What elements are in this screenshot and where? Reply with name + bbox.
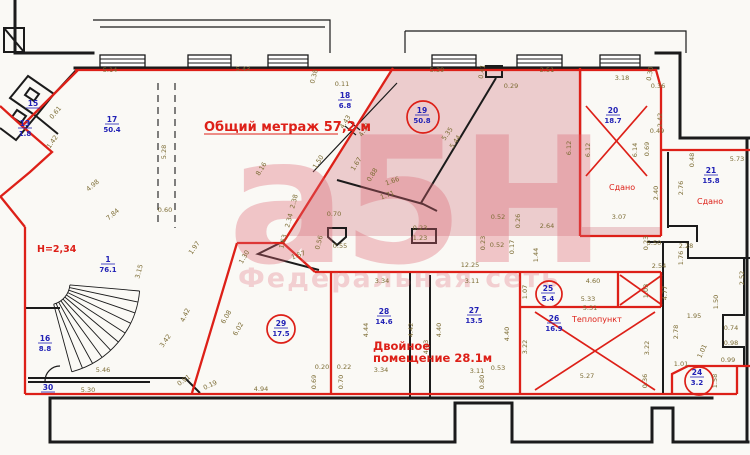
dimension-label: 3.18 — [615, 74, 629, 82]
dimension-label: 4.40 — [503, 327, 511, 341]
dimension-label: 5.31 — [583, 304, 597, 312]
dimension-label: 2.64 — [540, 222, 554, 230]
dimension-label: 1.03 — [642, 284, 650, 298]
room-number: 27 — [469, 306, 479, 315]
annotation-double: помещение 28.1м — [373, 351, 492, 365]
dimension-label: 5.39 — [430, 66, 444, 74]
dimension-label: 4.98 — [85, 178, 101, 193]
dimension-label: 1.95 — [687, 312, 701, 320]
dimension-label: 5.30 — [81, 386, 95, 394]
room-area: 50.4 — [103, 126, 120, 134]
room-area: 14.6 — [375, 318, 392, 326]
windows-layer — [100, 55, 640, 67]
staircase — [54, 285, 140, 372]
room-area: 5.4 — [542, 295, 555, 303]
dimension-label: 1.58 — [711, 374, 719, 388]
dimension-label: 0.23 — [642, 236, 650, 250]
dimension-label: 1.01 — [696, 343, 709, 360]
room-number: 29 — [276, 319, 286, 328]
room-area: 6.8 — [339, 102, 352, 110]
dimension-label: 0.53 — [491, 364, 505, 372]
dimension-label: 0.70 — [327, 210, 341, 218]
room-number: 16 — [40, 334, 50, 343]
dimension-label: 0.22 — [337, 363, 351, 371]
dimension-label: 1.01 — [674, 360, 688, 368]
dimension-label: 0.17 — [508, 240, 516, 254]
dimension-label: 3.07 — [612, 213, 626, 221]
dimension-label: 7.84 — [105, 207, 121, 222]
dimension-label: 4.60 — [586, 277, 600, 285]
dimension-label: 0.70 — [337, 375, 345, 389]
room-number: 25 — [543, 284, 553, 293]
dimension-label: 0.74 — [724, 324, 738, 332]
floor-plan-drawing: а5НФедеральная сеть 5.145.430.380.115.39… — [0, 0, 750, 455]
dimension-label: 2.40 — [652, 186, 660, 200]
dimension-label: 0.99 — [721, 356, 735, 364]
dimension-label: 3.11 — [465, 277, 479, 285]
dimension-label: 0.11 — [335, 80, 349, 88]
dimension-label: 0.80 — [478, 375, 486, 389]
dimension-label: 5.43 — [236, 65, 250, 73]
dimension-label: 5.46 — [96, 366, 110, 374]
room-number: 21 — [706, 166, 716, 175]
room-area: 1.8 — [19, 130, 32, 138]
room-number: 18 — [340, 91, 350, 100]
dimension-label: 0.26 — [514, 214, 522, 228]
dimension-label: 4.94 — [254, 385, 268, 393]
dimension-label: 3.42 — [158, 333, 173, 349]
dimension-label: 5.28 — [160, 145, 168, 159]
dimension-label: 0.52 — [491, 213, 505, 221]
dimension-label: 0.60 — [158, 206, 172, 214]
dimension-label: 2.51 — [540, 66, 554, 74]
dimension-label: 0.36 — [651, 82, 665, 90]
room-area: 17.5 — [272, 330, 289, 338]
dimension-label: 2.42 — [656, 113, 664, 127]
dimension-label: 2.28 — [679, 242, 693, 250]
room-area: 3.2 — [691, 379, 704, 387]
dimension-label: 4.42 — [407, 323, 415, 337]
floor-plan-page: а5НФедеральная сеть 5.145.430.380.115.39… — [0, 0, 750, 455]
dimension-label: 0.98 — [724, 339, 738, 347]
dimension-label: 0.30 — [645, 66, 655, 82]
room-area: 50.8 — [413, 117, 430, 125]
room-area: 8.8 — [39, 345, 52, 353]
dimension-label: 4.77 — [661, 286, 669, 300]
dimension-label: 1.42 — [45, 134, 60, 150]
annotation-small: Сдано — [697, 197, 723, 206]
dimension-label: 0.61 — [48, 105, 63, 121]
room-number: 15 — [28, 99, 38, 108]
annotation-wm-small: Федеральная сеть — [238, 263, 560, 294]
room-number: 20 — [608, 106, 618, 115]
dimension-label: 6.02 — [231, 321, 245, 338]
annotation-total: Общий метраж 57,2 м — [204, 120, 371, 135]
room-area: 13.5 — [465, 317, 482, 325]
dimension-label: 0.69 — [310, 375, 318, 389]
dimension-label: 0.69 — [643, 142, 651, 156]
dimension-label: 1.07 — [521, 285, 529, 299]
dimension-label: 3.11 — [470, 367, 484, 375]
dimension-label: 3.22 — [521, 340, 529, 354]
dimension-label: 0.91 — [176, 373, 192, 388]
dimension-label: 2.76 — [677, 181, 685, 195]
dimension-label: 4.44 — [362, 323, 370, 337]
room-number: 30 — [43, 383, 53, 392]
annotation-note: Н=2,34 — [37, 244, 77, 255]
room-area: 76.1 — [99, 266, 116, 274]
room-area: 15.8 — [702, 177, 719, 185]
dimension-label: 1.50 — [712, 295, 720, 309]
annotation-small: Теплопункт — [571, 315, 622, 324]
dimension-label: 0.48 — [688, 153, 696, 167]
room-area: 18.7 — [604, 117, 621, 125]
dimension-label: 5.33 — [581, 295, 595, 303]
dimension-label: 4.40 — [435, 323, 443, 337]
dimension-label: 0.19 — [202, 379, 219, 392]
dimension-label: 0.20 — [315, 363, 329, 371]
dimension-label: 0.23 — [479, 236, 487, 250]
dimension-label: 2.54 — [652, 262, 666, 270]
dimension-label: 4.42 — [179, 307, 192, 324]
dimension-label: 3.22 — [643, 341, 651, 355]
dimension-label: 6.14 — [631, 143, 639, 157]
dimension-label: 0.29 — [504, 82, 518, 90]
room-number: 19 — [417, 106, 427, 115]
dimension-label: 3.34 — [375, 277, 389, 285]
dimension-label: 5.27 — [580, 372, 594, 380]
dimension-label: 6.12 — [565, 141, 573, 155]
dimension-label: 1.44 — [532, 248, 540, 262]
dimension-label: 6.12 — [584, 143, 592, 157]
dimension-label: 5.73 — [730, 155, 744, 163]
room-number: 1 — [105, 255, 110, 264]
dimension-label: 0.55 — [333, 242, 347, 250]
dimension-label: 5.14 — [103, 66, 117, 74]
dimension-label: 0.49 — [650, 127, 664, 135]
room-number: 17 — [107, 115, 117, 124]
dimension-label: 1.76 — [677, 251, 685, 265]
room-number: 13 — [20, 119, 30, 128]
dimension-label: 0.52 — [490, 241, 504, 249]
room-number: 24 — [692, 368, 702, 377]
dimension-label: 12.25 — [461, 261, 480, 269]
dimension-label: 6.08 — [219, 309, 233, 326]
dimension-label: 0.36 — [641, 374, 649, 388]
dimension-label: 1.97 — [187, 240, 202, 256]
dimension-label: 2.78 — [672, 325, 680, 339]
room-number: 28 — [379, 307, 389, 316]
room-number: 26 — [549, 314, 559, 323]
dimension-label: 2.52 — [738, 271, 746, 285]
room-area: 16.9 — [545, 325, 562, 333]
dimension-label: 1.23 — [413, 234, 427, 242]
annotation-small: Сдано — [609, 183, 635, 192]
dimension-label: 3.34 — [374, 366, 388, 374]
dimension-label: 3.15 — [133, 263, 144, 279]
dimension-label: 0.23 — [413, 224, 427, 232]
